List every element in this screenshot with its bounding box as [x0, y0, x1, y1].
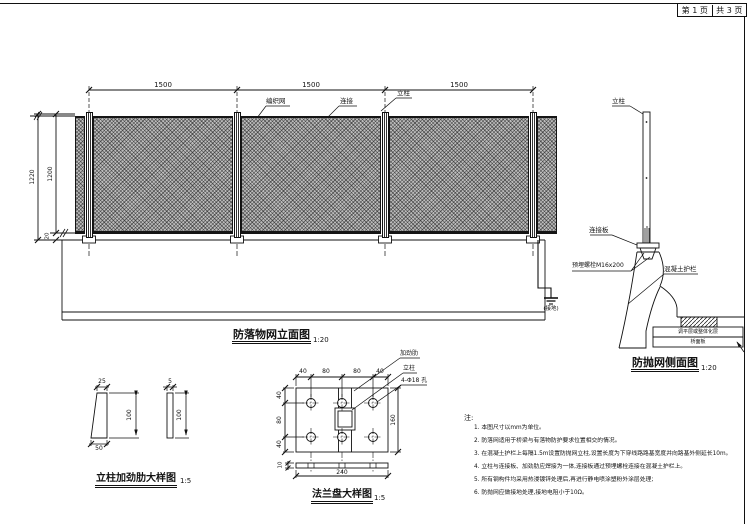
side-label-bolt: 预埋螺栓M16x200: [572, 263, 624, 269]
note-item-3: 3. 在混凝土护栏上每隔1.5m设置防抛网立柱,设置长度为下穿线路路基宽度并向路…: [474, 452, 731, 458]
dim-span-2: 1500: [302, 82, 320, 89]
flange-dim-240: 240: [336, 470, 347, 476]
flange-dim-left-1: 40: [277, 391, 283, 399]
side-label-plate: 连接板: [589, 227, 609, 234]
side-title: 防抛网侧面图: [631, 357, 699, 372]
flange-title: 法兰盘大样图: [311, 490, 373, 504]
post-3: [382, 112, 389, 238]
flange-dim-top-3: 80: [353, 369, 361, 375]
stiffener-dim-100a: 100: [127, 409, 133, 420]
side-label-barrier: 混凝土护栏: [664, 266, 697, 273]
flange-dim-left-2: 80: [277, 416, 283, 424]
flange-dim-top-1: 40: [299, 369, 307, 375]
side-label-layer1: 调平层或整体化层: [678, 330, 718, 335]
drawing-sheet: 第 1 页 共 3 页: [0, 0, 750, 524]
mesh-panel-partial-left: [75, 116, 85, 234]
notes-heading: 注:: [464, 415, 473, 422]
side-label-post: 立柱: [612, 98, 625, 105]
dim-20: 20: [45, 233, 51, 240]
label-connect: 连接: [340, 98, 353, 105]
stiffener-scale: 1:5: [180, 478, 191, 485]
flange-dim-top-4: 40: [376, 369, 384, 375]
mesh-panel-1: [93, 116, 233, 234]
post-4: [530, 112, 537, 238]
label-mesh: 编织网: [266, 98, 286, 105]
drawing-linework: [0, 0, 750, 524]
note-item-1: 1. 本图尺寸以mm为单位。: [474, 426, 545, 432]
flange-label-post: 立柱: [403, 366, 415, 372]
stiffener-title: 立柱加劲肋大样图: [95, 474, 177, 488]
note-item-6: 6. 防抛网应做接地处理,接地电阻小于10Ω。: [474, 491, 588, 497]
side-label-layer2: 桥面板: [690, 340, 705, 345]
flange-label-rib: 加劲肋: [400, 351, 418, 357]
flange-dim-160: 160: [391, 414, 397, 425]
stiffener-linework: [88, 384, 189, 447]
dim-span-3: 1500: [450, 82, 468, 89]
label-ground: (接地): [543, 307, 558, 313]
flange-scale: 1:5: [374, 495, 385, 502]
stiffener-rib-shape: [91, 393, 107, 438]
note-item-2: 2. 防落网适用于桥梁与有落物防护要求位置相交的情况。: [474, 439, 621, 445]
note-item-5: 5. 所有钢构件均采用热浸镀锌处理后,再进行静电喷涂塑粉外涂层处理;: [474, 478, 653, 484]
pavement-hatch: [681, 317, 717, 327]
stiffener-dim-50: 50: [95, 446, 103, 452]
post-2: [234, 112, 241, 238]
dim-1220: 1220: [30, 169, 36, 184]
dim-1200: 1200: [48, 166, 54, 181]
flange-dim-top-2: 80: [322, 369, 330, 375]
flange-dim-10: 10: [278, 462, 284, 469]
ground-wire: [538, 240, 551, 298]
connection-plate: [637, 243, 659, 248]
elevation-title: 防落物网立面图: [232, 329, 311, 344]
stiffener-dim-5: 5: [168, 379, 172, 385]
side-scale: 1:20: [701, 365, 717, 372]
post-1: [86, 112, 93, 238]
stiffener-dim-100b: 100: [177, 409, 183, 420]
mesh-panel-3: [389, 116, 529, 234]
flange-dim-left-3: 40: [277, 440, 283, 448]
note-item-4: 4. 立柱与连接板、加劲肋应焊接为一体,连接板通过预埋螺栓连接在混凝土护栏上。: [474, 465, 686, 471]
flange-label-holes: 4-Φ18 孔: [401, 378, 427, 384]
dim-span-1: 1500: [154, 82, 172, 89]
mesh-panel-partial-right: [537, 116, 557, 234]
mesh-panel-2: [241, 116, 381, 234]
stiffener-dim-25: 25: [98, 379, 106, 385]
stiffener-plate-shape: [167, 393, 173, 438]
elevation-scale: 1:20: [313, 337, 329, 344]
label-post: 立柱: [397, 90, 410, 97]
